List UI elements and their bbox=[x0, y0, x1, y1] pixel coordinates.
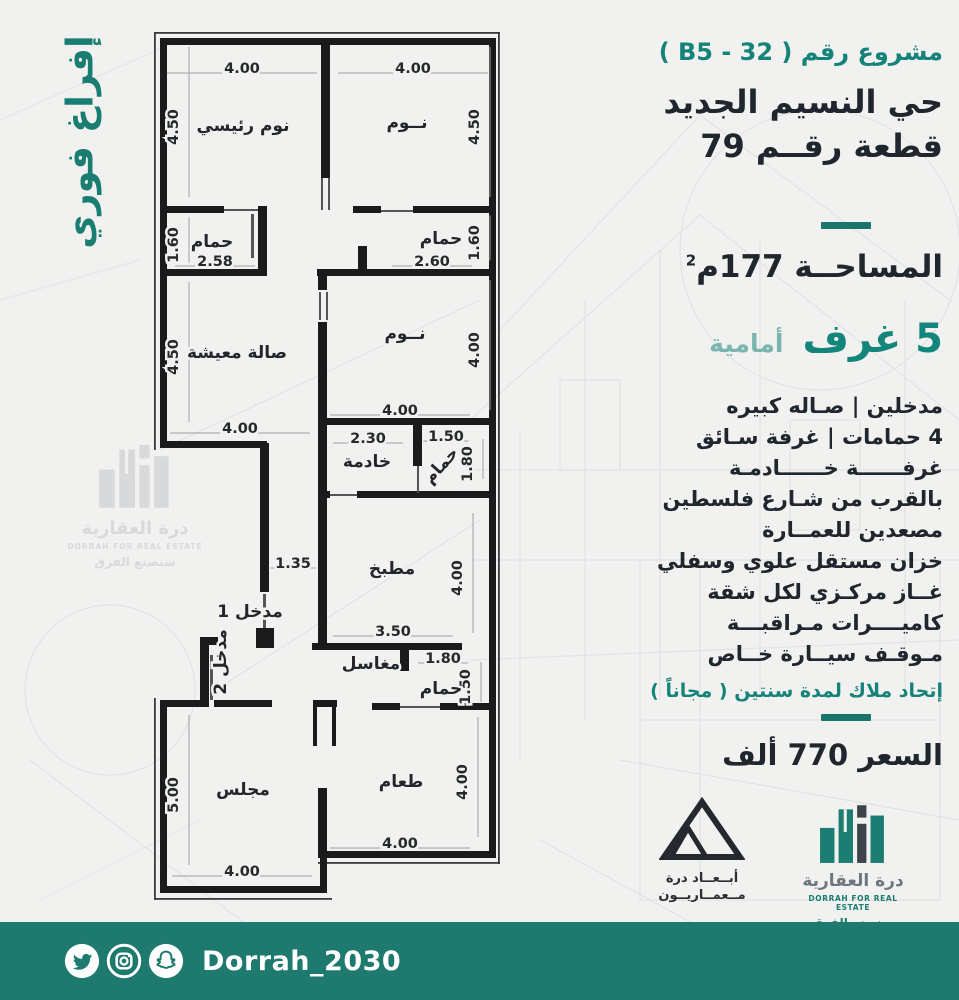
plan-label: مغاسل bbox=[342, 654, 400, 674]
plan-label: 4.00 bbox=[224, 864, 260, 880]
plan-label: 2.58 bbox=[197, 254, 233, 270]
dorrah-buildings-icon bbox=[820, 797, 886, 865]
immediate-vacancy-banner: إفراغ فوري bbox=[59, 35, 102, 248]
snapchat-icon[interactable] bbox=[148, 943, 184, 979]
plan-label: مجلس bbox=[216, 780, 270, 800]
plan-label: 1.50 bbox=[428, 429, 464, 445]
plan-label: 4.00 bbox=[450, 560, 466, 596]
plan-label: نــوم bbox=[386, 113, 427, 133]
rooms-summary: 5 غرف أمامية bbox=[619, 315, 943, 371]
area-superscript: 2 bbox=[686, 252, 696, 270]
plan-label: 1.80 bbox=[460, 446, 476, 482]
flyer-page: درة العقارية DORRAH FOR REAL ESTATE سنصن… bbox=[0, 0, 959, 1000]
plan-label: 2.60 bbox=[414, 254, 450, 270]
plan-label: نــوم bbox=[384, 324, 425, 344]
feature-item: مـوقـف سيــارة خــاص bbox=[619, 639, 943, 670]
price: السعر 770 ألف bbox=[619, 737, 943, 775]
area-text: المساحــة 177م bbox=[696, 249, 943, 285]
dorrah-realestate-logo: درة العقارية DORRAH FOR REAL ESTATE سنصن… bbox=[798, 797, 908, 930]
feature-item: غرفــــــة خــــــادمـة bbox=[619, 453, 943, 484]
plan-label: مطبخ bbox=[369, 559, 415, 579]
plot-number: قطعة رقــم 79 bbox=[619, 126, 943, 168]
dorrah-logo-arabic: درة العقارية bbox=[798, 871, 908, 891]
plan-label: 4.50 bbox=[467, 109, 483, 145]
info-panel: مشروع رقم ( B5 - 32 ) حي النسيم الجديد ق… bbox=[619, 38, 943, 930]
triangle-logo-icon bbox=[659, 797, 745, 861]
plan-label: نوم رئيسي bbox=[196, 116, 289, 136]
footer-bar: Dorrah_2030 bbox=[0, 922, 959, 1000]
features-list: مدخلين | صـاله كبيره 4 حمامات | غرفة سـا… bbox=[619, 391, 943, 670]
plan-label: 4.00 bbox=[395, 61, 431, 77]
abaad-architects-logo: أبــعــاد درة مــعمــاريــون bbox=[654, 797, 750, 903]
plan-label: 3.50 bbox=[375, 624, 411, 640]
plan-label: 1.60 bbox=[467, 225, 483, 261]
plan-label: 4.00 bbox=[382, 403, 418, 419]
feature-item: 4 حمامات | غرفة سـائق bbox=[619, 422, 943, 453]
plan-label: 4.00 bbox=[224, 61, 260, 77]
dorrah-logo-english: DORRAH FOR REAL ESTATE bbox=[798, 894, 908, 912]
plan-label: حمام bbox=[420, 229, 463, 249]
plan-label: 1.60 bbox=[166, 227, 182, 263]
plan-label: صالة معيشة bbox=[187, 343, 287, 363]
abaad-logo-line1: أبــعــاد درة bbox=[654, 871, 750, 886]
feature-item: كاميــــرات مـراقبـــة bbox=[619, 608, 943, 639]
plan-label: حمام bbox=[191, 232, 234, 252]
plan-label: 4.00 bbox=[467, 332, 483, 368]
feature-item: مدخلين | صـاله كبيره bbox=[619, 391, 943, 422]
plan-label: حمام bbox=[420, 679, 463, 699]
social-icons bbox=[64, 943, 184, 979]
abaad-logo-line2: مــعمــاريــون bbox=[654, 888, 750, 903]
plan-label: 4.00 bbox=[455, 764, 471, 800]
plan-label: 4.50 bbox=[166, 109, 182, 145]
plan-label: حمام bbox=[420, 443, 463, 488]
logos-row: أبــعــاد درة مــعمــاريــون درة العقاري… bbox=[619, 797, 943, 930]
project-number: مشروع رقم ( B5 - 32 ) bbox=[619, 38, 943, 66]
plan-label: 4.50 bbox=[166, 339, 182, 375]
social-handle: Dorrah_2030 bbox=[202, 946, 401, 977]
area-value: المساحــة 177م2 bbox=[619, 247, 943, 287]
plan-label: 2.30 bbox=[350, 431, 386, 447]
plan-label: 4.00 bbox=[222, 421, 258, 437]
plan-label: 5.00 bbox=[166, 777, 182, 813]
rooms-side: أمامية bbox=[709, 329, 783, 358]
owners-association-note: إتحاد ملاك لمدة سنتين ( مجاناً ) bbox=[619, 678, 943, 704]
district-name: حي النسيم الجديد bbox=[619, 82, 943, 124]
feature-item: مصعدين للعمــارة bbox=[619, 515, 943, 546]
plan-label: 1.35 bbox=[275, 556, 311, 572]
plan-label: 1.80 bbox=[425, 651, 461, 667]
feature-item: غــاز مركـزي لكل شقة bbox=[619, 577, 943, 608]
plan-label: مدخل 2 bbox=[211, 629, 231, 695]
rooms-count: 5 غرف bbox=[803, 316, 943, 362]
feature-item: خزان مستقل علوي وسفلي bbox=[619, 546, 943, 577]
plan-label: طعام bbox=[379, 772, 423, 792]
plan-label: خادمة bbox=[343, 452, 391, 472]
plan-label: 4.00 bbox=[382, 836, 418, 852]
feature-item: بالقرب من شـارع فلسطين bbox=[619, 484, 943, 515]
floor-plan: 4.004.004.504.501.602.581.602.604.504.00… bbox=[140, 18, 512, 910]
instagram-icon[interactable] bbox=[106, 943, 142, 979]
plan-label: مدخل 1 bbox=[217, 602, 283, 622]
teal-divider-bar bbox=[821, 222, 871, 229]
teal-divider-bar bbox=[821, 714, 871, 721]
twitter-icon[interactable] bbox=[64, 943, 100, 979]
